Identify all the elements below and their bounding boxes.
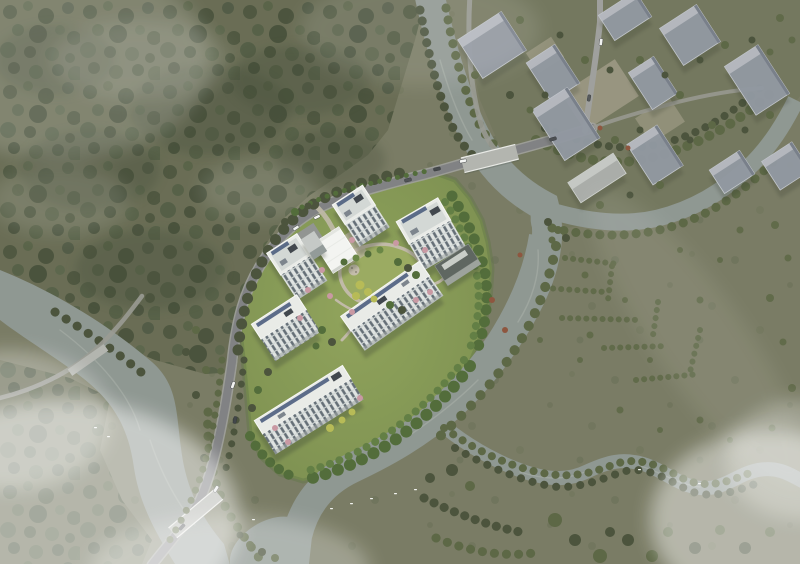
scene-svg [0,0,800,564]
fog-overlay [0,0,800,564]
aerial-rendering [0,0,800,564]
